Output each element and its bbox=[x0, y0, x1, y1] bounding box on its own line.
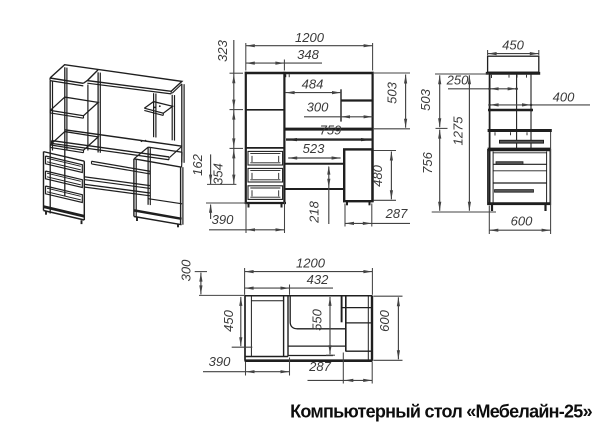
svg-text:300: 300 bbox=[307, 100, 329, 115]
svg-text:503: 503 bbox=[385, 81, 400, 103]
svg-text:250: 250 bbox=[446, 73, 469, 88]
svg-text:523: 523 bbox=[303, 141, 325, 156]
svg-text:450: 450 bbox=[221, 309, 236, 331]
svg-text:162: 162 bbox=[190, 153, 205, 175]
svg-text:450: 450 bbox=[502, 37, 524, 52]
svg-text:354: 354 bbox=[210, 163, 225, 185]
svg-text:1200: 1200 bbox=[295, 30, 325, 45]
svg-text:432: 432 bbox=[307, 272, 329, 287]
svg-text:600: 600 bbox=[511, 213, 533, 228]
svg-text:484: 484 bbox=[302, 76, 324, 91]
svg-text:287: 287 bbox=[308, 359, 331, 374]
svg-text:323: 323 bbox=[215, 39, 230, 61]
svg-text:287: 287 bbox=[385, 206, 408, 221]
svg-text:Компьютерный стол «Мебелайн-25: Компьютерный стол «Мебелайн-25» bbox=[290, 402, 592, 422]
svg-text:348: 348 bbox=[297, 47, 319, 62]
svg-text:390: 390 bbox=[209, 354, 231, 369]
svg-text:218: 218 bbox=[307, 200, 322, 223]
svg-text:480: 480 bbox=[370, 164, 385, 186]
svg-text:1275: 1275 bbox=[450, 116, 465, 146]
svg-text:756: 756 bbox=[420, 151, 435, 173]
svg-text:600: 600 bbox=[377, 309, 392, 331]
svg-text:503: 503 bbox=[418, 88, 433, 110]
svg-text:759: 759 bbox=[320, 122, 342, 137]
svg-text:300: 300 bbox=[179, 259, 194, 281]
svg-text:390: 390 bbox=[212, 212, 234, 227]
svg-text:1200: 1200 bbox=[296, 255, 326, 270]
svg-text:400: 400 bbox=[553, 89, 575, 104]
svg-text:550: 550 bbox=[309, 308, 324, 330]
